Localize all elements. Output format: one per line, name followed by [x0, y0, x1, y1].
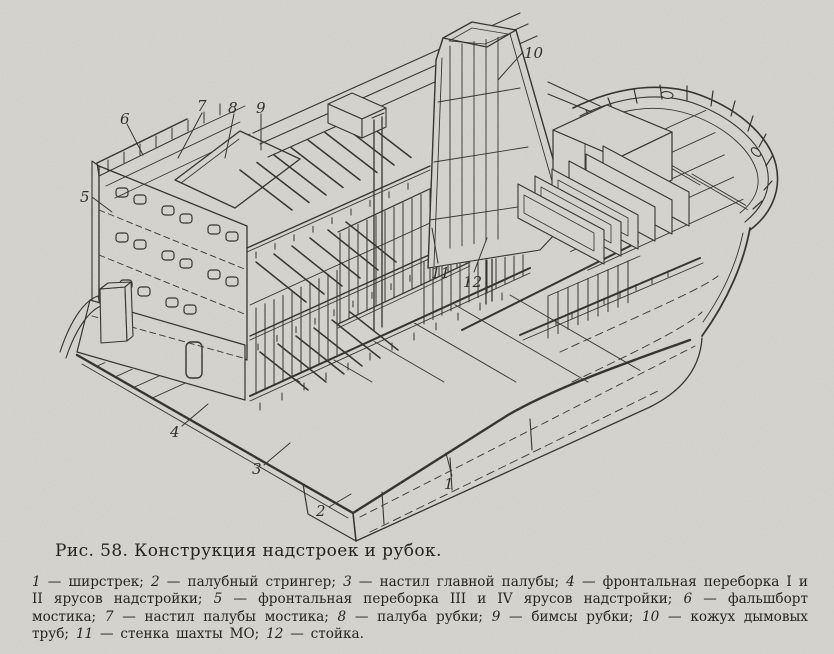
- legend-text: — ширстрек;: [41, 574, 151, 590]
- figure-caption: Рис. 58. Конструкция надстроек и рубок.: [55, 541, 442, 561]
- legend-num: 6: [683, 591, 692, 607]
- legend-text: — бимсы рубки;: [500, 609, 642, 625]
- legend-num: 5: [214, 591, 223, 607]
- legend-text: — настил главной палубы;: [352, 574, 566, 590]
- legend-text: — фронтальная переборка III и IV ярусов …: [222, 591, 683, 607]
- book-page: 1 2 3 4 5 6 7 8 9 10 11 12 Рис. 58. Конс…: [0, 0, 834, 654]
- legend-num: 12: [266, 626, 283, 642]
- legend-num: 10: [642, 609, 659, 625]
- legend-num: 4: [566, 574, 575, 590]
- legend-text: — стойка.: [283, 626, 364, 642]
- legend-num: 11: [76, 626, 93, 642]
- legend-text: — палуба рубки;: [346, 609, 492, 625]
- legend-num: 8: [338, 609, 347, 625]
- figure-legend: 1 — ширстрек; 2 — палубный стрингер; 3 —…: [32, 574, 808, 643]
- legend-num: 7: [105, 609, 114, 625]
- legend-text: — стенка шахты МО;: [93, 626, 266, 642]
- legend-num: 3: [343, 574, 352, 590]
- legend-num: 1: [32, 574, 41, 590]
- legend-text: — палубный стрингер;: [160, 574, 343, 590]
- legend-num: 2: [151, 574, 160, 590]
- legend-text: — настил палубы мостика;: [114, 609, 338, 625]
